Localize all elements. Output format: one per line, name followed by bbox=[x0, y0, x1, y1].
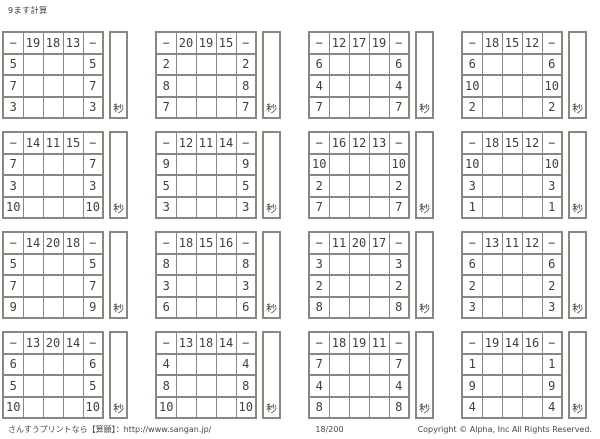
answer-cell bbox=[63, 175, 83, 197]
answer-cell bbox=[216, 375, 236, 397]
answer-cell bbox=[369, 254, 389, 276]
calc-group-2: −201915−228877秒 bbox=[155, 31, 286, 119]
minuend-cell: 16 bbox=[329, 132, 349, 154]
subtrahend-repeat-cell: 7 bbox=[236, 97, 256, 119]
seconds-kanji-icon bbox=[113, 303, 124, 314]
answer-cell bbox=[43, 275, 63, 297]
answer-cell bbox=[23, 75, 43, 97]
minuend-cell: 12 bbox=[329, 32, 349, 54]
minus-operator-cell: − bbox=[462, 132, 482, 154]
calc-group-4: −181512−66101022秒 bbox=[461, 31, 592, 119]
subtrahend-cell: 5 bbox=[3, 254, 23, 276]
minus-operator-cell: − bbox=[236, 132, 256, 154]
subtrahend-repeat-cell: 8 bbox=[236, 75, 256, 97]
subtrahend-repeat-cell: 5 bbox=[83, 375, 103, 397]
answer-cell bbox=[329, 75, 349, 97]
subtrahend-repeat-cell: 7 bbox=[83, 75, 103, 97]
answer-cell bbox=[502, 175, 522, 197]
minuend-cell: 20 bbox=[43, 232, 63, 254]
minus-operator-cell: − bbox=[3, 332, 23, 354]
minus-operator-cell: − bbox=[462, 332, 482, 354]
minus-operator-cell: − bbox=[3, 132, 23, 154]
subtrahend-cell: 2 bbox=[309, 275, 329, 297]
answer-cell bbox=[176, 397, 196, 419]
subtrahend-repeat-cell: 9 bbox=[236, 154, 256, 176]
minuend-cell: 11 bbox=[43, 132, 63, 154]
calc-group-8: −181512−10103311秒 bbox=[461, 131, 592, 219]
subtrahend-cell: 3 bbox=[462, 297, 482, 319]
answer-cell bbox=[196, 375, 216, 397]
subtrahend-repeat-cell: 9 bbox=[542, 375, 562, 397]
subtrahend-cell: 2 bbox=[156, 54, 176, 76]
subtrahend-cell: 7 bbox=[3, 275, 23, 297]
answer-cell bbox=[23, 375, 43, 397]
subtrahend-repeat-cell: 2 bbox=[542, 97, 562, 119]
minus-operator-cell: − bbox=[389, 232, 409, 254]
subtrahend-repeat-cell: 4 bbox=[236, 354, 256, 376]
minuend-cell: 11 bbox=[369, 332, 389, 354]
answer-cell bbox=[502, 397, 522, 419]
subtrahend-cell: 10 bbox=[462, 75, 482, 97]
subtrahend-cell: 5 bbox=[3, 375, 23, 397]
minuend-cell: 12 bbox=[522, 232, 542, 254]
subtrahend-repeat-cell: 2 bbox=[236, 54, 256, 76]
calc-group-10: −181516−883366秒 bbox=[155, 231, 286, 319]
minus-operator-cell: − bbox=[3, 32, 23, 54]
seconds-kanji-icon bbox=[113, 203, 124, 214]
minuend-cell: 18 bbox=[329, 332, 349, 354]
subtraction-grid: −112017−332288 bbox=[308, 231, 410, 319]
answer-cell bbox=[43, 297, 63, 319]
subtraction-grid: −131112−662233 bbox=[461, 231, 563, 319]
seconds-box: 秒 bbox=[262, 31, 281, 119]
answer-cell bbox=[216, 354, 236, 376]
seconds-box: 秒 bbox=[109, 131, 128, 219]
seconds-box: 秒 bbox=[262, 331, 281, 419]
subtrahend-cell: 2 bbox=[462, 97, 482, 119]
answer-cell bbox=[23, 254, 43, 276]
answer-cell bbox=[63, 54, 83, 76]
answer-cell bbox=[349, 375, 369, 397]
answer-cell bbox=[482, 54, 502, 76]
answer-cell bbox=[23, 297, 43, 319]
subtraction-grid: −201915−228877 bbox=[155, 31, 257, 119]
seconds-box: 秒 bbox=[109, 331, 128, 419]
answer-cell bbox=[482, 297, 502, 319]
subtrahend-cell: 5 bbox=[3, 54, 23, 76]
subtraction-grid: −181911−774488 bbox=[308, 331, 410, 419]
minus-operator-cell: − bbox=[462, 232, 482, 254]
calc-group-6: −121114−995533秒 bbox=[155, 131, 286, 219]
answer-cell bbox=[216, 54, 236, 76]
answer-cell bbox=[216, 175, 236, 197]
calc-group-15: −181911−774488秒 bbox=[308, 331, 439, 419]
subtrahend-cell: 7 bbox=[3, 75, 23, 97]
subtrahend-repeat-cell: 10 bbox=[83, 397, 103, 419]
minus-operator-cell: − bbox=[309, 232, 329, 254]
answer-cell bbox=[63, 97, 83, 119]
subtraction-grid: −142018−557799 bbox=[2, 231, 104, 319]
seconds-box: 秒 bbox=[109, 31, 128, 119]
subtrahend-repeat-cell: 4 bbox=[389, 75, 409, 97]
minuend-cell: 19 bbox=[349, 332, 369, 354]
answer-cell bbox=[369, 54, 389, 76]
subtrahend-repeat-cell: 6 bbox=[236, 297, 256, 319]
subtrahend-cell: 8 bbox=[156, 254, 176, 276]
subtrahend-repeat-cell: 10 bbox=[83, 197, 103, 219]
minuend-cell: 11 bbox=[502, 232, 522, 254]
subtrahend-cell: 6 bbox=[462, 54, 482, 76]
answer-cell bbox=[196, 397, 216, 419]
answer-cell bbox=[482, 75, 502, 97]
subtrahend-repeat-cell: 1 bbox=[542, 354, 562, 376]
answer-cell bbox=[369, 397, 389, 419]
answer-cell bbox=[23, 275, 43, 297]
answer-cell bbox=[196, 175, 216, 197]
seconds-box: 秒 bbox=[568, 331, 587, 419]
seconds-kanji-icon bbox=[266, 103, 277, 114]
subtrahend-cell: 3 bbox=[462, 175, 482, 197]
answer-cell bbox=[196, 197, 216, 219]
minus-operator-cell: − bbox=[542, 332, 562, 354]
seconds-box: 秒 bbox=[262, 131, 281, 219]
answer-cell bbox=[329, 354, 349, 376]
minuend-cell: 13 bbox=[176, 332, 196, 354]
answer-cell bbox=[522, 54, 542, 76]
answer-cell bbox=[369, 97, 389, 119]
minuend-cell: 13 bbox=[369, 132, 389, 154]
minus-operator-cell: − bbox=[389, 132, 409, 154]
minuend-cell: 20 bbox=[176, 32, 196, 54]
subtrahend-repeat-cell: 1 bbox=[542, 197, 562, 219]
subtrahend-cell: 9 bbox=[3, 297, 23, 319]
subtrahend-repeat-cell: 3 bbox=[236, 275, 256, 297]
answer-cell bbox=[43, 254, 63, 276]
subtrahend-cell: 2 bbox=[309, 175, 329, 197]
answer-cell bbox=[369, 175, 389, 197]
answer-cell bbox=[502, 297, 522, 319]
calc-group-9: −142018−557799秒 bbox=[2, 231, 133, 319]
subtrahend-repeat-cell: 3 bbox=[83, 97, 103, 119]
answer-cell bbox=[482, 197, 502, 219]
answer-cell bbox=[369, 297, 389, 319]
answer-cell bbox=[43, 54, 63, 76]
answer-cell bbox=[176, 375, 196, 397]
subtrahend-cell: 8 bbox=[309, 397, 329, 419]
minus-operator-cell: − bbox=[156, 232, 176, 254]
answer-cell bbox=[522, 354, 542, 376]
answer-cell bbox=[482, 354, 502, 376]
answer-cell bbox=[329, 254, 349, 276]
minus-operator-cell: − bbox=[236, 232, 256, 254]
seconds-kanji-icon bbox=[419, 403, 430, 414]
minus-operator-cell: − bbox=[236, 332, 256, 354]
subtrahend-repeat-cell: 3 bbox=[389, 254, 409, 276]
calc-group-16: −191416−119944秒 bbox=[461, 331, 592, 419]
subtrahend-cell: 6 bbox=[156, 297, 176, 319]
minuend-cell: 15 bbox=[502, 32, 522, 54]
subtrahend-repeat-cell: 6 bbox=[542, 54, 562, 76]
minus-operator-cell: − bbox=[236, 32, 256, 54]
answer-cell bbox=[329, 397, 349, 419]
subtraction-grid: −191416−119944 bbox=[461, 331, 563, 419]
answer-cell bbox=[216, 254, 236, 276]
subtrahend-repeat-cell: 6 bbox=[389, 54, 409, 76]
answer-cell bbox=[369, 197, 389, 219]
minuend-cell: 18 bbox=[482, 32, 502, 54]
subtrahend-repeat-cell: 5 bbox=[83, 54, 103, 76]
answer-cell bbox=[43, 397, 63, 419]
subtrahend-repeat-cell: 3 bbox=[542, 175, 562, 197]
minuend-cell: 15 bbox=[196, 232, 216, 254]
answer-cell bbox=[196, 354, 216, 376]
minus-operator-cell: − bbox=[389, 332, 409, 354]
answer-cell bbox=[329, 97, 349, 119]
seconds-kanji-icon bbox=[113, 403, 124, 414]
subtraction-grid: −141115−77331010 bbox=[2, 131, 104, 219]
seconds-box: 秒 bbox=[415, 331, 434, 419]
seconds-kanji-icon bbox=[572, 203, 583, 214]
minuend-cell: 15 bbox=[63, 132, 83, 154]
subtraction-grid: −181512−66101022 bbox=[461, 31, 563, 119]
subtrahend-cell: 4 bbox=[309, 375, 329, 397]
answer-cell bbox=[349, 297, 369, 319]
subtrahend-cell: 7 bbox=[3, 154, 23, 176]
answer-cell bbox=[329, 154, 349, 176]
subtrahend-cell: 2 bbox=[462, 275, 482, 297]
answer-cell bbox=[43, 354, 63, 376]
answer-cell bbox=[63, 75, 83, 97]
answer-cell bbox=[63, 154, 83, 176]
minuend-cell: 19 bbox=[482, 332, 502, 354]
answer-cell bbox=[329, 54, 349, 76]
answer-cell bbox=[216, 397, 236, 419]
answer-cell bbox=[482, 375, 502, 397]
subtrahend-cell: 10 bbox=[156, 397, 176, 419]
answer-cell bbox=[176, 154, 196, 176]
subtrahend-repeat-cell: 10 bbox=[389, 154, 409, 176]
seconds-box: 秒 bbox=[262, 231, 281, 319]
subtrahend-repeat-cell: 2 bbox=[389, 175, 409, 197]
minuend-cell: 16 bbox=[216, 232, 236, 254]
answer-cell bbox=[522, 254, 542, 276]
minus-operator-cell: − bbox=[83, 132, 103, 154]
subtrahend-repeat-cell: 3 bbox=[236, 197, 256, 219]
answer-cell bbox=[176, 54, 196, 76]
answer-cell bbox=[23, 197, 43, 219]
seconds-box: 秒 bbox=[568, 131, 587, 219]
minuend-cell: 11 bbox=[196, 132, 216, 154]
answer-cell bbox=[216, 275, 236, 297]
answer-cell bbox=[522, 297, 542, 319]
subtrahend-cell: 1 bbox=[462, 354, 482, 376]
minuend-cell: 17 bbox=[349, 32, 369, 54]
subtraction-grid: −121719−664477 bbox=[308, 31, 410, 119]
answer-cell bbox=[43, 154, 63, 176]
answer-cell bbox=[349, 254, 369, 276]
answer-cell bbox=[522, 154, 542, 176]
answer-cell bbox=[43, 197, 63, 219]
answer-cell bbox=[196, 297, 216, 319]
answer-cell bbox=[216, 197, 236, 219]
subtrahend-cell: 7 bbox=[309, 197, 329, 219]
subtrahend-repeat-cell: 10 bbox=[236, 397, 256, 419]
subtrahend-repeat-cell: 7 bbox=[83, 154, 103, 176]
answer-cell bbox=[349, 275, 369, 297]
minus-operator-cell: − bbox=[309, 132, 329, 154]
minus-operator-cell: − bbox=[156, 132, 176, 154]
answer-cell bbox=[196, 154, 216, 176]
minuend-cell: 20 bbox=[349, 232, 369, 254]
minuend-cell: 19 bbox=[23, 32, 43, 54]
subtrahend-repeat-cell: 8 bbox=[236, 254, 256, 276]
minus-operator-cell: − bbox=[83, 32, 103, 54]
minuend-cell: 14 bbox=[63, 332, 83, 354]
answer-cell bbox=[196, 254, 216, 276]
subtrahend-cell: 3 bbox=[156, 197, 176, 219]
footer-site-link[interactable]: さんすうプリントなら【算願】：http://www.sangan.jp/ bbox=[8, 424, 211, 435]
subtrahend-repeat-cell: 2 bbox=[542, 275, 562, 297]
subtrahend-cell: 7 bbox=[309, 354, 329, 376]
answer-cell bbox=[482, 97, 502, 119]
answer-cell bbox=[329, 175, 349, 197]
minus-operator-cell: − bbox=[309, 32, 329, 54]
subtrahend-cell: 8 bbox=[156, 75, 176, 97]
seconds-box: 秒 bbox=[415, 31, 434, 119]
answer-cell bbox=[369, 154, 389, 176]
subtraction-grid: −181512−10103311 bbox=[461, 131, 563, 219]
subtraction-grid: −121114−995533 bbox=[155, 131, 257, 219]
subtrahend-cell: 10 bbox=[3, 397, 23, 419]
minuend-cell: 13 bbox=[23, 332, 43, 354]
minuend-cell: 18 bbox=[196, 332, 216, 354]
answer-cell bbox=[349, 54, 369, 76]
subtrahend-cell: 6 bbox=[462, 254, 482, 276]
subtrahend-cell: 3 bbox=[309, 254, 329, 276]
minuend-cell: 12 bbox=[176, 132, 196, 154]
answer-cell bbox=[482, 154, 502, 176]
minuend-cell: 20 bbox=[43, 332, 63, 354]
answer-cell bbox=[329, 297, 349, 319]
subtrahend-repeat-cell: 7 bbox=[83, 275, 103, 297]
minuend-cell: 17 bbox=[369, 232, 389, 254]
answer-cell bbox=[502, 275, 522, 297]
worksheet-grids-container: −191813−557733秒−201915−228877秒−121719−66… bbox=[2, 31, 592, 419]
answer-cell bbox=[482, 275, 502, 297]
seconds-box: 秒 bbox=[109, 231, 128, 319]
subtraction-grid: −191813−557733 bbox=[2, 31, 104, 119]
answer-cell bbox=[522, 97, 542, 119]
minuend-cell: 18 bbox=[176, 232, 196, 254]
answer-cell bbox=[63, 354, 83, 376]
minuend-cell: 14 bbox=[23, 132, 43, 154]
subtrahend-cell: 4 bbox=[309, 75, 329, 97]
answer-cell bbox=[216, 297, 236, 319]
answer-cell bbox=[349, 197, 369, 219]
minus-operator-cell: − bbox=[542, 132, 562, 154]
subtrahend-repeat-cell: 10 bbox=[542, 75, 562, 97]
answer-cell bbox=[216, 154, 236, 176]
answer-cell bbox=[369, 375, 389, 397]
subtrahend-repeat-cell: 3 bbox=[83, 175, 103, 197]
minuend-cell: 13 bbox=[482, 232, 502, 254]
subtrahend-repeat-cell: 4 bbox=[542, 397, 562, 419]
seconds-box: 秒 bbox=[415, 131, 434, 219]
subtraction-grid: −131814−44881010 bbox=[155, 331, 257, 419]
subtrahend-repeat-cell: 7 bbox=[389, 354, 409, 376]
answer-cell bbox=[482, 397, 502, 419]
answer-cell bbox=[502, 75, 522, 97]
minus-operator-cell: − bbox=[389, 32, 409, 54]
answer-cell bbox=[23, 354, 43, 376]
minuend-cell: 18 bbox=[63, 232, 83, 254]
seconds-kanji-icon bbox=[419, 203, 430, 214]
subtrahend-repeat-cell: 6 bbox=[83, 354, 103, 376]
subtraction-grid: −181516−883366 bbox=[155, 231, 257, 319]
subtrahend-repeat-cell: 6 bbox=[542, 254, 562, 276]
minus-operator-cell: − bbox=[83, 232, 103, 254]
minus-operator-cell: − bbox=[542, 32, 562, 54]
answer-cell bbox=[196, 75, 216, 97]
answer-cell bbox=[216, 97, 236, 119]
minuend-cell: 19 bbox=[369, 32, 389, 54]
answer-cell bbox=[502, 197, 522, 219]
answer-cell bbox=[369, 75, 389, 97]
answer-cell bbox=[176, 254, 196, 276]
subtrahend-repeat-cell: 9 bbox=[83, 297, 103, 319]
calc-group-1: −191813−557733秒 bbox=[2, 31, 133, 119]
subtrahend-repeat-cell: 2 bbox=[389, 275, 409, 297]
subtrahend-repeat-cell: 8 bbox=[236, 375, 256, 397]
seconds-kanji-icon bbox=[266, 403, 277, 414]
answer-cell bbox=[369, 354, 389, 376]
seconds-kanji-icon bbox=[572, 103, 583, 114]
answer-cell bbox=[502, 375, 522, 397]
minuend-cell: 19 bbox=[196, 32, 216, 54]
seconds-kanji-icon bbox=[572, 403, 583, 414]
answer-cell bbox=[522, 75, 542, 97]
minus-operator-cell: − bbox=[156, 332, 176, 354]
subtrahend-cell: 9 bbox=[462, 375, 482, 397]
answer-cell bbox=[502, 254, 522, 276]
answer-cell bbox=[349, 397, 369, 419]
answer-cell bbox=[349, 97, 369, 119]
answer-cell bbox=[196, 54, 216, 76]
subtraction-grid: −132014−66551010 bbox=[2, 331, 104, 419]
subtrahend-cell: 8 bbox=[309, 297, 329, 319]
subtrahend-repeat-cell: 7 bbox=[389, 197, 409, 219]
answer-cell bbox=[349, 154, 369, 176]
answer-cell bbox=[23, 397, 43, 419]
answer-cell bbox=[63, 297, 83, 319]
answer-cell bbox=[502, 97, 522, 119]
seconds-kanji-icon bbox=[419, 303, 430, 314]
subtrahend-cell: 6 bbox=[309, 54, 329, 76]
minus-operator-cell: − bbox=[309, 332, 329, 354]
subtrahend-repeat-cell: 8 bbox=[389, 397, 409, 419]
subtrahend-cell: 3 bbox=[156, 275, 176, 297]
seconds-kanji-icon bbox=[266, 303, 277, 314]
answer-cell bbox=[23, 54, 43, 76]
seconds-box: 秒 bbox=[568, 231, 587, 319]
answer-cell bbox=[23, 175, 43, 197]
subtrahend-cell: 3 bbox=[3, 97, 23, 119]
answer-cell bbox=[329, 375, 349, 397]
minuend-cell: 12 bbox=[522, 132, 542, 154]
subtrahend-cell: 6 bbox=[3, 354, 23, 376]
subtrahend-repeat-cell: 4 bbox=[389, 375, 409, 397]
answer-cell bbox=[63, 375, 83, 397]
